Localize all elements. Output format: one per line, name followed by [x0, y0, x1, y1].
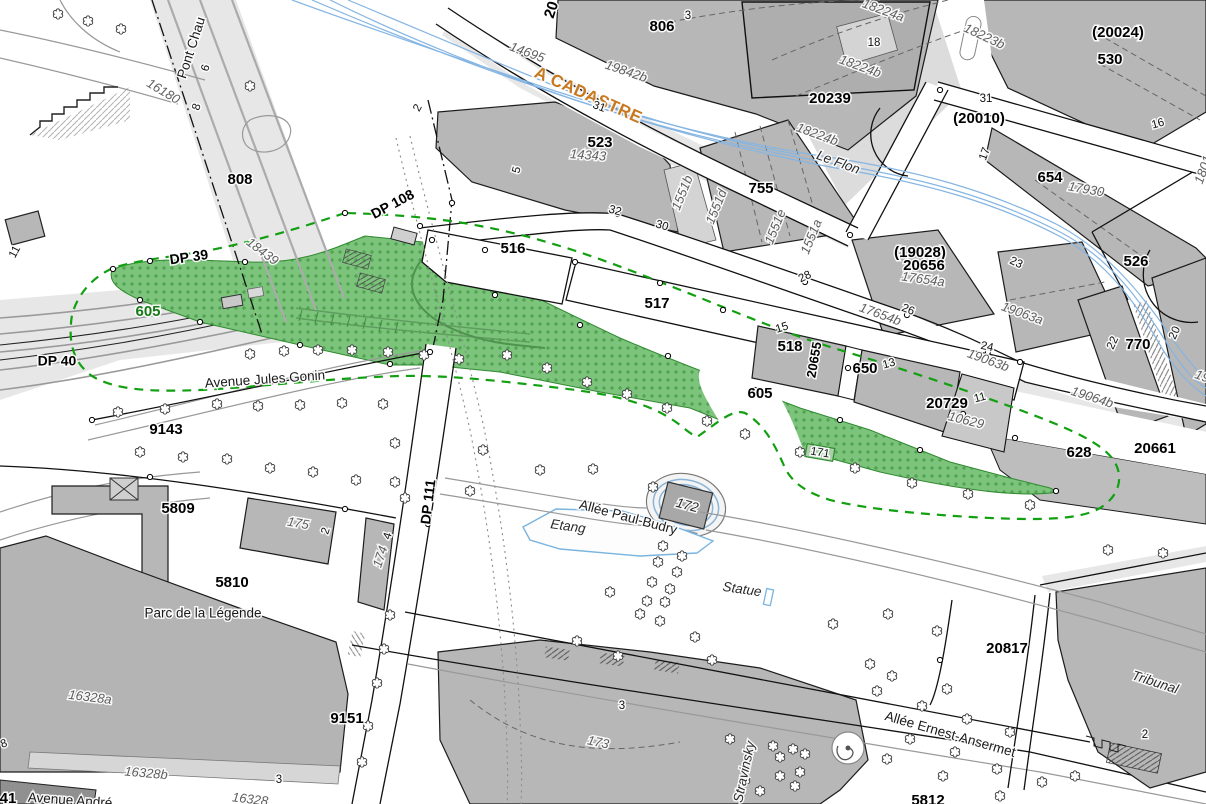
- map-label: 16328: [231, 789, 269, 804]
- tree-icon: [655, 616, 664, 626]
- tree-icon: [253, 401, 262, 411]
- boundary-marker: [137, 297, 142, 302]
- tree-icon: [308, 467, 317, 477]
- map-label: 526: [1123, 253, 1148, 270]
- map-label: 14343: [570, 146, 608, 164]
- tree-icon: [502, 350, 511, 360]
- boundary-marker: [577, 322, 582, 327]
- tree-icon: [605, 587, 614, 597]
- tree-icon: [882, 754, 891, 764]
- boundary-marker: [1017, 359, 1022, 364]
- tree-icon: [707, 655, 716, 665]
- tree-icon: [279, 346, 288, 356]
- map-label: 518: [777, 338, 802, 355]
- tree-icon: [363, 721, 372, 731]
- map-label: 605: [747, 385, 772, 402]
- tree-icon: [775, 771, 784, 781]
- tree-icon: [942, 684, 951, 694]
- map-label: 806: [649, 18, 674, 35]
- boundary-marker: [665, 353, 670, 358]
- map-label: 3: [685, 10, 691, 22]
- tree-icon: [907, 478, 916, 488]
- tree-icon: [653, 557, 662, 567]
- tree-icon: [372, 678, 381, 688]
- tree-icon: [725, 734, 734, 744]
- tree-icon: [383, 347, 392, 357]
- boundary-marker: [147, 474, 152, 479]
- boundary-marker: [845, 365, 850, 370]
- tree-icon: [116, 24, 125, 34]
- tree-icon: [850, 463, 859, 473]
- tree-icon: [775, 752, 784, 762]
- tree-icon: [917, 701, 926, 711]
- map-label: 5812: [911, 792, 944, 804]
- map-label: 755: [748, 180, 773, 197]
- tree-icon: [1103, 545, 1112, 555]
- tree-icon: [795, 447, 804, 457]
- tree-icon: [622, 389, 631, 399]
- map-label: 605: [135, 303, 160, 320]
- tree-icon: [665, 584, 674, 594]
- tree-icon: [1037, 777, 1046, 787]
- map-label: 5809: [161, 500, 194, 517]
- tree-icon: [613, 651, 622, 661]
- tree-icon: [672, 567, 681, 577]
- boundary-marker: [492, 292, 497, 297]
- map-label: 770: [1125, 336, 1150, 353]
- boundary-marker: [242, 259, 247, 264]
- tree-icon: [828, 619, 837, 629]
- map-label: 517: [644, 295, 669, 312]
- tree-icon: [385, 610, 394, 620]
- boundary-marker: [387, 361, 392, 366]
- map-label: 20817: [986, 640, 1028, 657]
- map-label: DP 40: [38, 353, 77, 369]
- tree-icon: [755, 786, 764, 796]
- map-label: 20729: [926, 395, 968, 412]
- tree-icon: [222, 454, 231, 464]
- tree-icon: [295, 400, 304, 410]
- tree-icon: [588, 464, 597, 474]
- map-label: 654: [1037, 169, 1063, 186]
- tree-icon: [905, 734, 914, 744]
- tree-icon: [313, 345, 322, 355]
- map-label: 31: [980, 93, 993, 105]
- tree-icon: [1158, 548, 1167, 558]
- tree-icon: [265, 463, 274, 473]
- tree-icon: [390, 477, 399, 487]
- map-label: 20661: [1134, 440, 1176, 457]
- boundary-marker: [572, 259, 577, 264]
- map-label: 530: [1097, 51, 1122, 68]
- tree-icon: [740, 429, 749, 439]
- boundary-marker: [917, 447, 922, 452]
- tree-icon: [400, 493, 409, 503]
- tree-icon: [962, 714, 971, 724]
- boundary-marker: [427, 349, 432, 354]
- tree-icon: [872, 686, 881, 696]
- map-label: 2: [411, 102, 425, 113]
- tree-icon: [542, 363, 551, 373]
- tree-icon: [795, 767, 804, 777]
- boundary-marker: [847, 232, 852, 237]
- tree-icon: [135, 447, 144, 457]
- tree-icon: [932, 626, 941, 636]
- map-label: DP 108: [368, 186, 417, 222]
- map-label: 9143: [149, 421, 182, 438]
- tree-icon: [677, 551, 686, 561]
- tree-icon: [53, 9, 62, 19]
- boundary-marker: [110, 266, 115, 271]
- boundary-marker: [1053, 488, 1058, 493]
- tree-icon: [702, 416, 711, 426]
- map-label: 16328b: [124, 764, 169, 783]
- tree-icon: [938, 771, 947, 781]
- map-label: 628: [1066, 444, 1091, 461]
- tree-icon: [950, 747, 959, 757]
- boundary-marker: [89, 417, 94, 422]
- tree-icon: [351, 475, 360, 485]
- map-label: (20010): [953, 110, 1005, 127]
- boundary-marker: [837, 417, 842, 422]
- tree-icon: [357, 757, 366, 767]
- tree-icon: [992, 764, 1001, 774]
- tree-icon: [963, 489, 972, 499]
- map-label: 650: [852, 360, 877, 377]
- tree-icon: [883, 609, 892, 619]
- map-label: (20024): [1092, 24, 1144, 41]
- tree-icon: [390, 438, 399, 448]
- boundary-marker: [937, 87, 942, 92]
- map-label: Statue: [722, 579, 763, 599]
- map-label: 11: [7, 244, 23, 260]
- map-label: 3: [276, 774, 282, 786]
- tree-icon: [642, 596, 651, 606]
- map-label: 9151: [330, 710, 363, 727]
- tree-icon: [378, 399, 387, 409]
- map-label: Avenue André: [27, 790, 112, 804]
- tree-icon: [572, 636, 581, 646]
- tree-icon: [178, 452, 187, 462]
- tree-icon: [478, 445, 487, 455]
- tree-icon: [465, 486, 474, 496]
- tree-icon: [113, 407, 122, 417]
- boundary-marker: [297, 342, 302, 347]
- map-label: 20239: [809, 90, 851, 107]
- tree-icon: [768, 741, 777, 751]
- map-label: 808: [227, 171, 252, 188]
- tree-icon: [379, 644, 388, 654]
- tree-icon: [1005, 727, 1014, 737]
- tree-icon: [535, 465, 544, 475]
- tree-icon: [690, 632, 699, 642]
- tree-icon: [648, 482, 657, 492]
- boundary-marker: [449, 200, 454, 205]
- tree-icon: [865, 659, 874, 669]
- boundary-marker: [342, 210, 347, 215]
- boundary-marker: [482, 247, 487, 252]
- map-label: Avenue Jules Gonin: [204, 367, 325, 390]
- tree-icon: [647, 577, 656, 587]
- boundary-marker: [197, 319, 202, 324]
- map-label: 516: [500, 240, 525, 257]
- tree-icon: [662, 403, 671, 413]
- tree-icon: [658, 541, 667, 551]
- tree-icon: [800, 749, 809, 759]
- boundary-marker: [937, 657, 942, 662]
- tree-icon: [660, 597, 669, 607]
- tree-icon: [1070, 771, 1079, 781]
- tree-icon: [995, 791, 1004, 801]
- tree-icon: [635, 609, 644, 619]
- tree-icon: [245, 349, 254, 359]
- tree-icon: [582, 377, 591, 387]
- tree-icon: [83, 16, 92, 26]
- boundary-marker: [657, 280, 662, 285]
- tree-icon: [160, 404, 169, 414]
- boundary-marker: [720, 307, 725, 312]
- cadastral-map[interactable]: Pont Chau616180880818439DP 39DP 4011605D…: [0, 0, 1206, 804]
- map-label: 41: [0, 790, 16, 804]
- map-label: 3: [619, 700, 625, 712]
- boundary-marker: [147, 258, 152, 263]
- tree-icon: [1025, 500, 1034, 510]
- tree-icon: [454, 354, 463, 364]
- tree-icon: [887, 671, 896, 681]
- map-canvas[interactable]: Pont Chau616180880818439DP 39DP 4011605D…: [0, 0, 1206, 804]
- map-label: 2: [1142, 729, 1148, 741]
- tree-icon: [788, 744, 797, 754]
- map-label: 18: [868, 37, 881, 49]
- tree-icon: [347, 345, 356, 355]
- tree-icon: [337, 398, 346, 408]
- map-label: Parc de la Légende: [144, 606, 261, 621]
- tree-icon: [790, 781, 799, 791]
- map-label: 5810: [215, 574, 248, 591]
- boundary-marker: [342, 506, 347, 511]
- tree-icon: [212, 399, 221, 409]
- boundary-marker: [1012, 435, 1017, 440]
- boundary-marker: [417, 223, 422, 228]
- boundary-marker: [429, 237, 434, 242]
- tree-icon: [245, 81, 254, 91]
